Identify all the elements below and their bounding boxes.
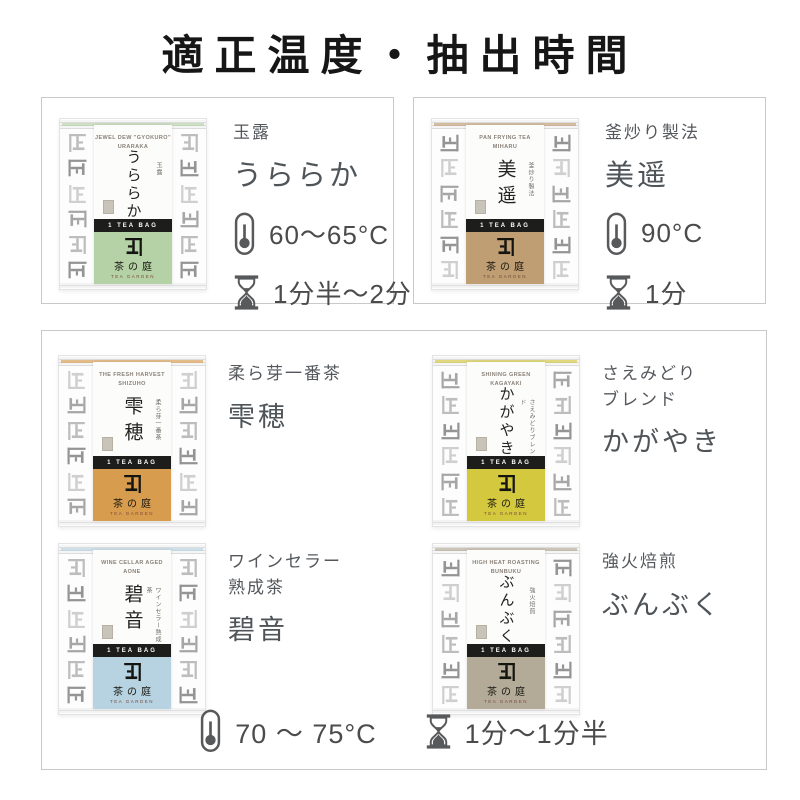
tea-bag-band-label: 1 TEA BAG — [107, 648, 157, 654]
package-shizuho: THE FRESH HARVEST SHIZUHO 柔ら芽一番茶 雫穂 1 TE… — [58, 355, 206, 527]
package-bunbuku: HIGH HEAT ROASTING BUNBUKU 強火焙煎 ぶんぶく 1 T… — [432, 543, 580, 715]
product-label: さえみどり ブレンド — [602, 361, 800, 412]
brand-panel: 茶の庭 TEA GARDEN — [93, 657, 171, 709]
package-subtitle-vertical: 強火焙煎 — [527, 587, 536, 615]
shared-brew-row: 70 〜 75°C 1分〜1分半 — [42, 705, 766, 757]
package-subtitle-vertical: 釜炒り製法 — [526, 162, 535, 197]
brand-name-jp: 茶の庭 — [487, 495, 529, 510]
thermometer-icon — [233, 212, 256, 256]
ue-kaneju-logo-icon — [125, 238, 142, 256]
package-english-title: WINE CELLAR AGED AONE — [93, 559, 171, 577]
brand-name-jp: 茶の庭 — [486, 258, 528, 273]
stamp-badge — [476, 625, 487, 639]
time-row: 1分 — [605, 274, 703, 311]
package-name-vertical: 雫穂 — [119, 396, 146, 448]
package-label-strip: WINE CELLAR AGED AONE ワインセラー熟成茶 碧音 1 TEA… — [93, 550, 171, 709]
ue-kaneju-logo-icon — [498, 475, 515, 493]
temperature-value: 60〜65°C — [269, 215, 389, 252]
package-uraraka: JEWEL DEW "GYOKURO" URARAKA 玉露 うららか 1 TE… — [59, 118, 207, 290]
brand-name-en: TEA GARDEN — [111, 274, 155, 279]
package-name-vertical: うららか — [123, 149, 144, 221]
product-name: ぶんぶく — [602, 583, 800, 622]
product-name: 美遥 — [605, 152, 703, 194]
brand-name-jp: 茶の庭 — [114, 258, 156, 273]
time-value: 1分〜1分半 — [465, 712, 609, 751]
package-label-strip: JEWEL DEW "GYOKURO" URARAKA 玉露 うららか 1 TE… — [94, 125, 172, 284]
brand-name-en: TEA GARDEN — [110, 699, 154, 704]
stamp-badge — [476, 437, 487, 451]
brand-name-jp: 茶の庭 — [487, 683, 529, 698]
stamp-badge — [102, 437, 113, 451]
brand-panel: 茶の庭 TEA GARDEN — [93, 469, 171, 521]
temperature-value: 90°C — [641, 218, 703, 249]
ue-kaneju-logo-icon — [498, 663, 515, 681]
tea-bag-band: 1 TEA BAG — [93, 644, 171, 657]
page-title: 適正温度・抽出時間 — [0, 22, 800, 83]
tea-bag-band-label: 1 TEA BAG — [481, 648, 531, 654]
package-name-vertical: 碧音 — [119, 584, 146, 636]
product-entry-aone: WINE CELLAR AGED AONE ワインセラー熟成茶 碧音 1 TEA… — [58, 543, 428, 715]
package-kagayaki: SHINING GREEN KAGAYAKI さえみどりブレンド かがやき 1 … — [432, 355, 580, 527]
package-subtitle-vertical: 玉露 — [154, 162, 163, 176]
package-name-vertical: かがやき — [496, 386, 517, 458]
product-card-uraraka: JEWEL DEW "GYOKURO" URARAKA 玉露 うららか 1 TE… — [41, 97, 394, 304]
time-value: 1分 — [645, 274, 687, 311]
brand-name-en: TEA GARDEN — [110, 511, 154, 516]
product-group-card: THE FRESH HARVEST SHIZUHO 柔ら芽一番茶 雫穂 1 TE… — [41, 330, 767, 770]
brand-panel: 茶の庭 TEA GARDEN — [467, 657, 545, 709]
hourglass-icon — [233, 275, 260, 310]
ue-kaneju-logo-icon — [497, 238, 514, 256]
package-label-strip: SHINING GREEN KAGAYAKI さえみどりブレンド かがやき 1 … — [467, 362, 545, 521]
brand-panel: 茶の庭 TEA GARDEN — [467, 469, 545, 521]
product-card-miharu: PAN FRYING TEA MIHARU 釜炒り製法 美遥 1 TEA BAG… — [413, 97, 766, 304]
stamp-badge — [103, 200, 114, 214]
package-subtitle-vertical: さえみどりブレンド — [518, 399, 536, 456]
time-row: 1分〜1分半 — [425, 712, 609, 751]
product-entry-shizuho: THE FRESH HARVEST SHIZUHO 柔ら芽一番茶 雫穂 1 TE… — [58, 355, 428, 527]
hourglass-icon — [605, 275, 632, 310]
product-entry-kagayaki: SHINING GREEN KAGAYAKI さえみどりブレンド かがやき 1 … — [432, 355, 800, 527]
brand-name-jp: 茶の庭 — [113, 495, 155, 510]
package-label-strip: THE FRESH HARVEST SHIZUHO 柔ら芽一番茶 雫穂 1 TE… — [93, 362, 171, 521]
tea-bag-band: 1 TEA BAG — [93, 456, 171, 469]
tea-bag-band-label: 1 TEA BAG — [108, 223, 158, 229]
temperature-row: 60〜65°C — [233, 212, 412, 256]
package-name-vertical: ぶんぶく — [496, 574, 517, 646]
brand-panel: 茶の庭 TEA GARDEN — [466, 232, 544, 284]
brand-name-en: TEA GARDEN — [483, 274, 527, 279]
ue-kaneju-logo-icon — [124, 475, 141, 493]
product-label: 玉露 — [233, 120, 412, 146]
package-subtitle-vertical: 柔ら芽一番茶 — [153, 399, 162, 441]
package-english-title: PAN FRYING TEA MIHARU — [466, 134, 544, 152]
product-name: 雫穂 — [228, 395, 428, 434]
product-label: 釜炒り製法 — [605, 120, 703, 146]
tea-bag-band-label: 1 TEA BAG — [107, 460, 157, 466]
stamp-badge — [475, 200, 486, 214]
brand-panel: 茶の庭 TEA GARDEN — [94, 232, 172, 284]
product-entry-bunbuku: HIGH HEAT ROASTING BUNBUKU 強火焙煎 ぶんぶく 1 T… — [432, 543, 800, 715]
product-name: うららか — [233, 152, 412, 194]
tea-bag-band-label: 1 TEA BAG — [481, 460, 531, 466]
ue-kaneju-logo-icon — [124, 663, 141, 681]
package-miharu: PAN FRYING TEA MIHARU 釜炒り製法 美遥 1 TEA BAG… — [431, 118, 579, 290]
stamp-badge — [102, 625, 113, 639]
package-subtitle-vertical: ワインセラー熟成茶 — [144, 587, 162, 644]
product-name: 碧音 — [228, 608, 428, 647]
time-value: 1分半〜2分 — [273, 274, 412, 311]
hourglass-icon — [425, 714, 452, 749]
brand-name-en: TEA GARDEN — [484, 699, 528, 704]
package-english-title: THE FRESH HARVEST SHIZUHO — [93, 371, 171, 389]
temperature-row: 70 〜 75°C — [199, 709, 376, 753]
time-row: 1分半〜2分 — [233, 274, 412, 311]
brand-name-jp: 茶の庭 — [113, 683, 155, 698]
temperature-value: 70 〜 75°C — [235, 712, 376, 751]
brand-name-en: TEA GARDEN — [484, 511, 528, 516]
thermometer-icon — [199, 709, 222, 753]
temperature-row: 90°C — [605, 212, 703, 256]
product-label: 強火焙煎 — [602, 549, 800, 575]
tea-bag-band-label: 1 TEA BAG — [480, 223, 530, 229]
product-name: かがやき — [602, 420, 800, 459]
package-name-vertical: 美遥 — [492, 159, 519, 211]
package-aone: WINE CELLAR AGED AONE ワインセラー熟成茶 碧音 1 TEA… — [58, 543, 206, 715]
product-label: 柔ら芽一番茶 — [228, 361, 428, 387]
thermometer-icon — [605, 212, 628, 256]
package-label-strip: PAN FRYING TEA MIHARU 釜炒り製法 美遥 1 TEA BAG… — [466, 125, 544, 284]
product-label: ワインセラー 熟成茶 — [228, 549, 428, 600]
tea-bag-band: 1 TEA BAG — [466, 219, 544, 232]
package-label-strip: HIGH HEAT ROASTING BUNBUKU 強火焙煎 ぶんぶく 1 T… — [467, 550, 545, 709]
